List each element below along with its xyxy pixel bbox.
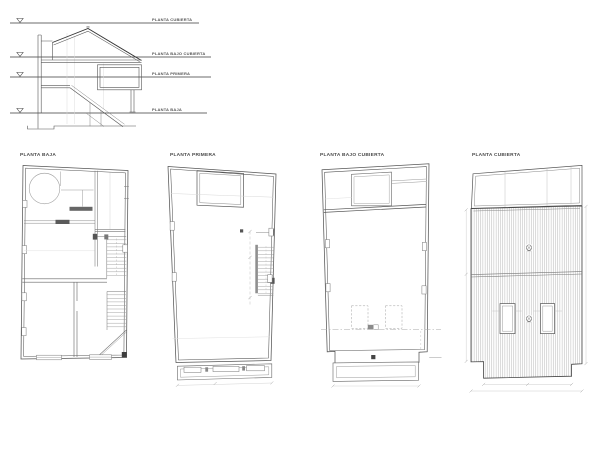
plan-outline-outer xyxy=(168,167,276,363)
roof-vent-icon xyxy=(525,315,533,323)
architectural-drawing-sheet: PLANTA CUBIERTA PLANTA BAJO CUBIERTA PLA… xyxy=(0,0,600,450)
balcony xyxy=(177,364,271,380)
patio-void-inner xyxy=(200,173,241,204)
floor-plan-planta-primera: PLANTA PRIMERA xyxy=(168,152,276,387)
corner-dark-square xyxy=(122,352,127,357)
faint-width-line xyxy=(171,194,274,198)
center-element-outline xyxy=(374,325,379,330)
section-roof-lines xyxy=(53,29,142,61)
plan-title-planta-primera: PLANTA PRIMERA xyxy=(170,152,216,158)
drawing-canvas: PLANTA CUBIERTA PLANTA BAJO CUBIERTA PLA… xyxy=(0,0,600,450)
plan-title-planta-bajo-cubierta: PLANTA BAJO CUBIERTA xyxy=(320,152,385,158)
level-marker-icon xyxy=(17,108,23,112)
wall-piers xyxy=(325,240,426,294)
interior-walls xyxy=(95,171,126,267)
plan-outline-outer xyxy=(322,164,429,364)
patio-void-outer xyxy=(197,171,244,208)
plan-outline-inner xyxy=(325,167,427,351)
terrace-division-lines xyxy=(505,166,571,207)
section-level-lines xyxy=(10,23,211,113)
lower-stair-frame xyxy=(107,292,126,331)
terrace-opening-inner xyxy=(354,175,389,204)
floor-plan-planta-baja: PLANTA BAJA xyxy=(20,152,129,360)
balcony-opening xyxy=(184,367,201,372)
level-label-planta-cubierta: PLANTA CUBIERTA xyxy=(152,17,192,22)
wall-dark-segment xyxy=(56,220,70,224)
balcony-jamb-dark xyxy=(205,367,208,371)
small-dark-square xyxy=(240,229,243,232)
floor-plan-planta-cubierta: PLANTA CUBIERTA xyxy=(465,152,588,393)
section-stair-lines-2 xyxy=(72,85,125,126)
building-section: PLANTA CUBIERTA PLANTA BAJO CUBIERTA PLA… xyxy=(10,17,211,129)
level-label-planta-baja: PLANTA BAJA xyxy=(152,107,182,112)
faint-bottom-line xyxy=(173,337,270,339)
level-marker-icon xyxy=(17,72,23,76)
lower-stair-treads xyxy=(107,295,126,327)
level-label-planta-primera: PLANTA PRIMERA xyxy=(152,71,190,76)
counter-dark-bar xyxy=(70,207,93,211)
balcony xyxy=(333,362,419,382)
terrace-shelf-lines xyxy=(392,179,427,183)
balcony-outline xyxy=(333,362,419,382)
stair-stringer-band xyxy=(255,245,258,293)
stair-cut-diagonal xyxy=(96,330,127,359)
terrace-outline-inner xyxy=(474,168,579,206)
plan-outline-outer xyxy=(21,166,128,360)
plan-title-planta-baja: PLANTA BAJA xyxy=(20,152,56,158)
terrace-outline-outer xyxy=(471,165,582,208)
section-ground-line xyxy=(28,126,137,129)
skylight xyxy=(540,304,554,334)
level-marker-icon xyxy=(17,52,23,56)
level-label-planta-bajo-cubierta: PLANTA BAJO CUBIERTA xyxy=(152,51,205,56)
section-background-lines xyxy=(67,33,104,124)
roof-hatch-area xyxy=(471,206,582,378)
dim-line-bottom xyxy=(177,383,271,385)
terrace-faint-line xyxy=(325,198,352,200)
partition-light-lines xyxy=(61,172,94,207)
balcony-jamb-dark xyxy=(242,366,245,370)
door-jamb-dark-2 xyxy=(104,234,108,239)
plan-outline-inner xyxy=(171,169,274,360)
level-marker-icons xyxy=(17,18,23,112)
circle-feature xyxy=(29,173,60,204)
plan-title-planta-cubierta: PLANTA CUBIERTA xyxy=(472,152,521,158)
level-marker-icon xyxy=(17,18,23,22)
roof-vent-icon xyxy=(525,244,533,252)
balcony-opening xyxy=(213,366,239,371)
center-element-dark xyxy=(368,325,373,330)
middle-wall-lines xyxy=(22,279,107,357)
door-jamb-dark xyxy=(93,234,97,240)
terrace-opening-outer xyxy=(352,172,392,206)
section-wall-lines xyxy=(38,35,142,129)
small-dark-square xyxy=(371,355,375,359)
balcony-opening xyxy=(247,366,265,371)
floor-plan-planta-bajo-cubierta: PLANTA BAJO CUBIERTA xyxy=(320,152,442,388)
